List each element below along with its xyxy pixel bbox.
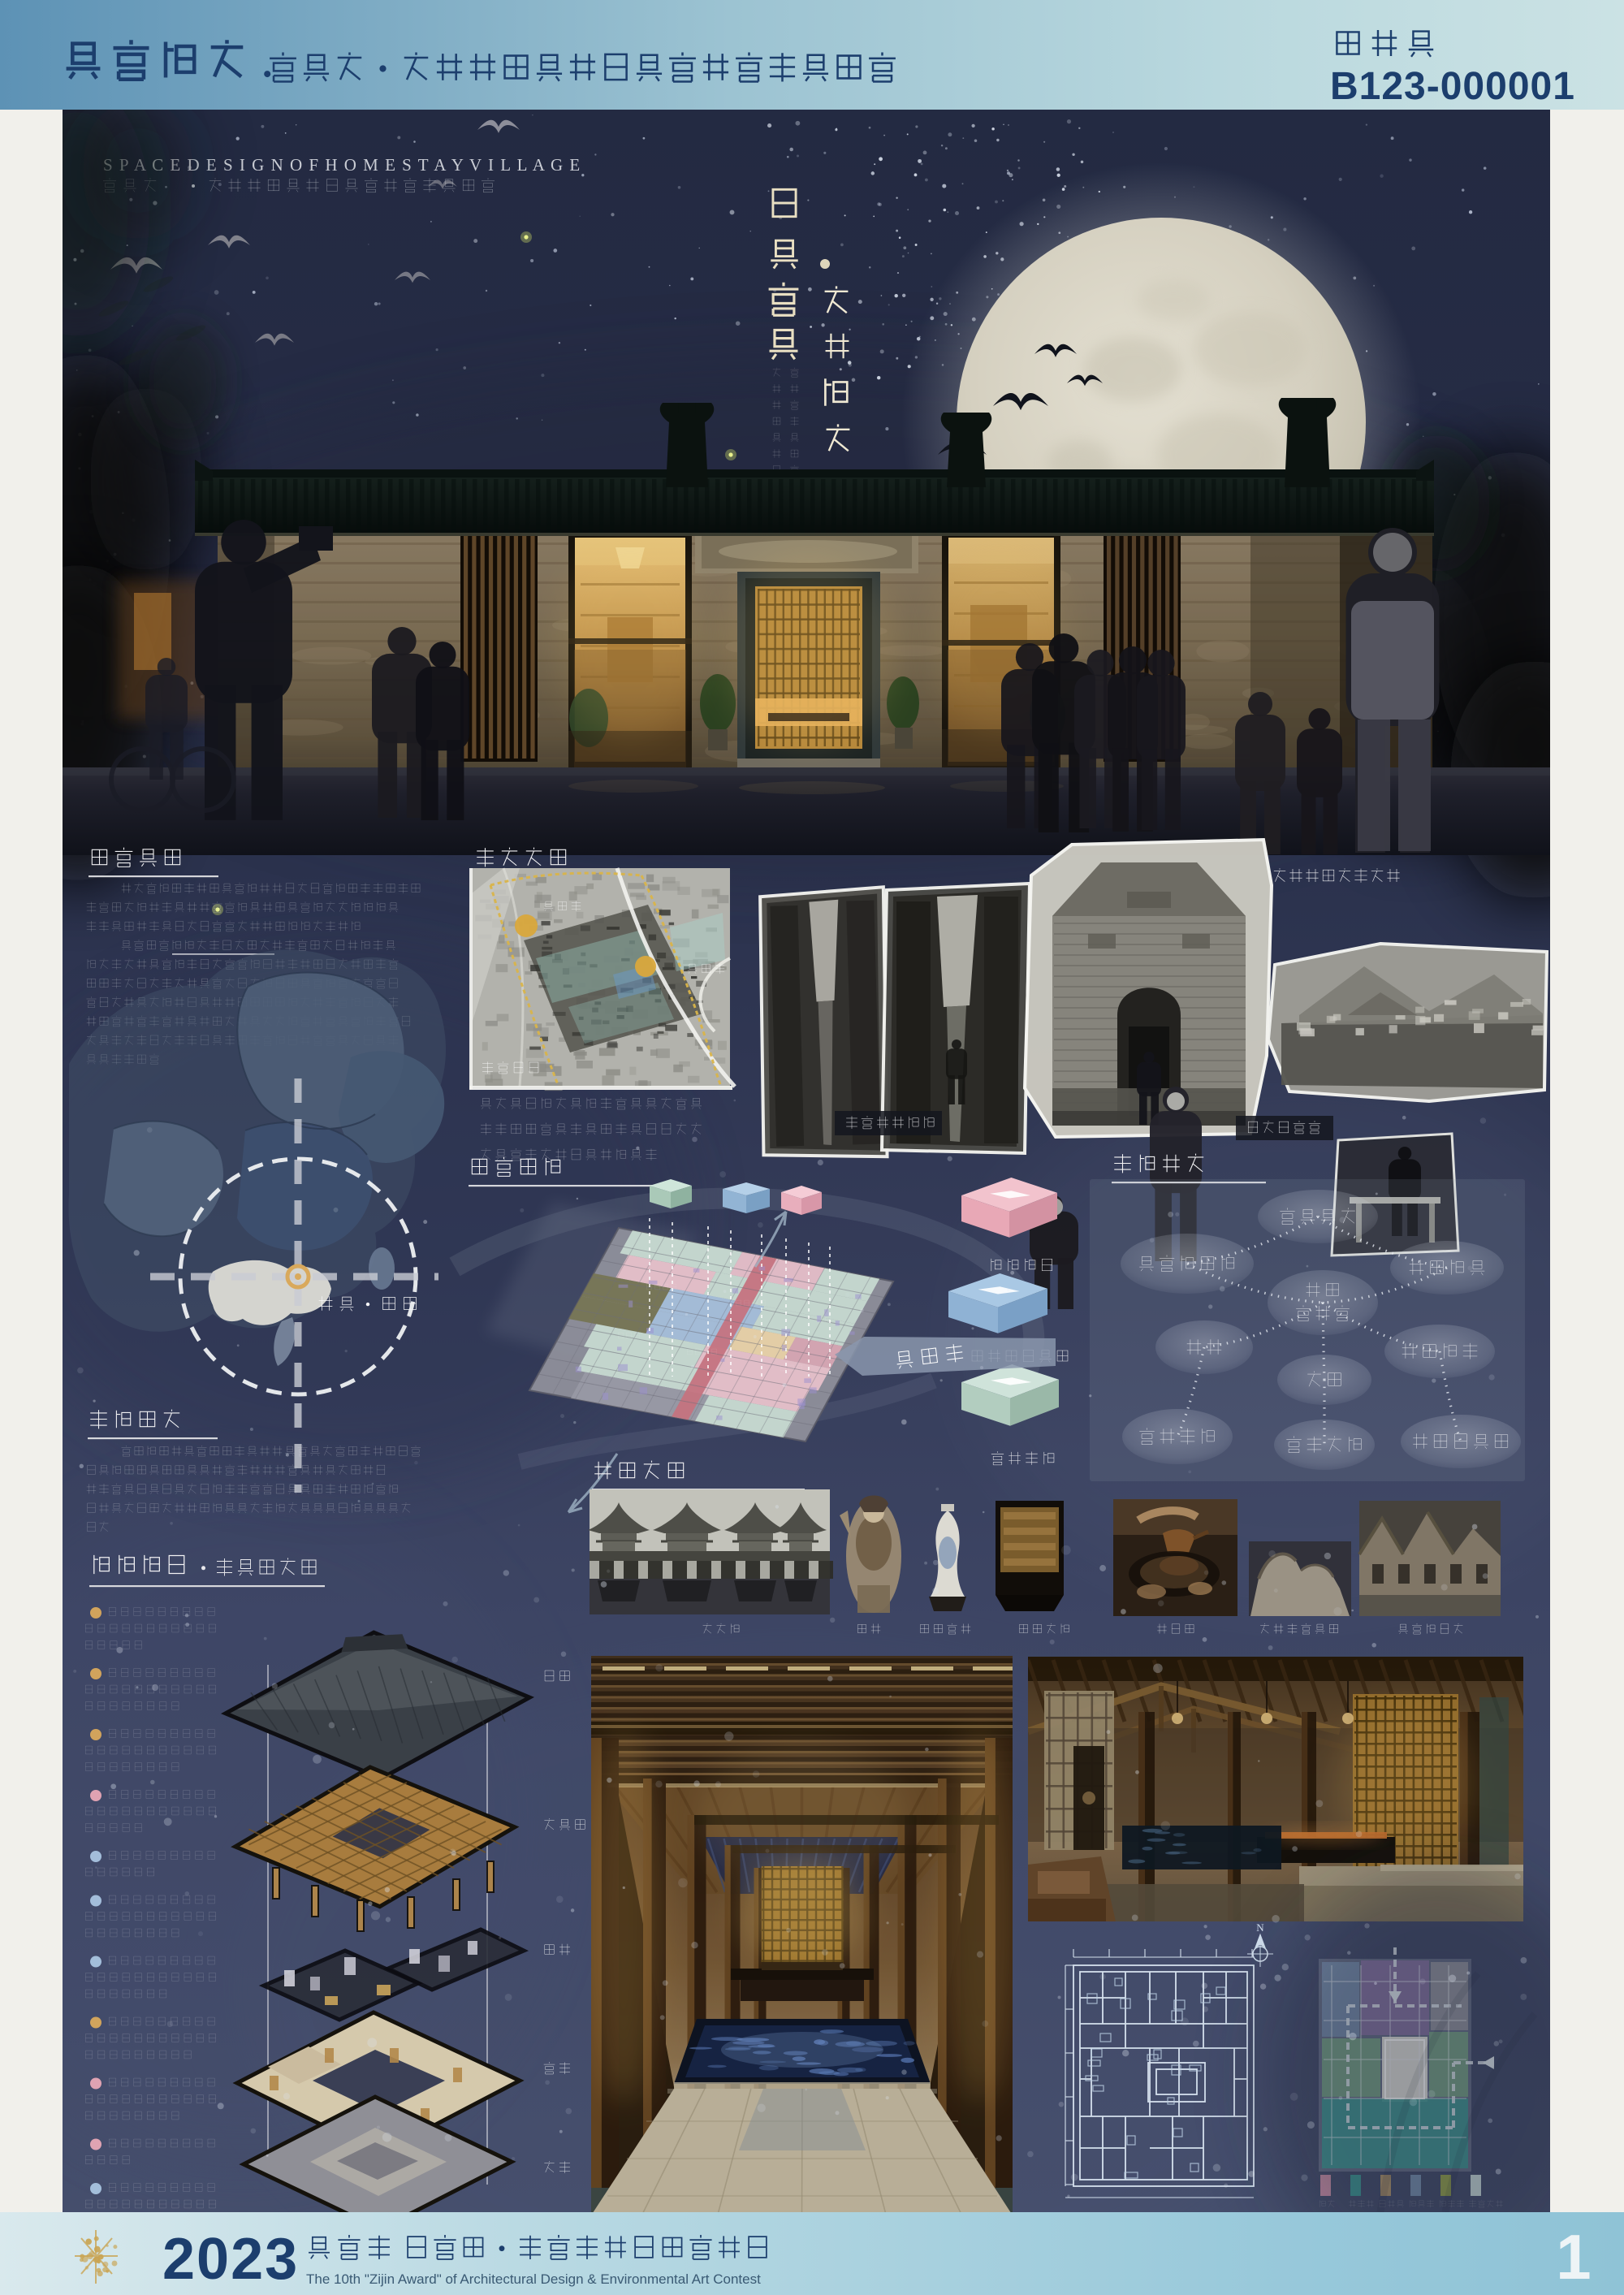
svg-text:The 10th "Zijin Award" of Arch: The 10th "Zijin Award" of Architectural … <box>306 2271 761 2287</box>
svg-text:N: N <box>1256 1921 1264 1934</box>
svg-text:2023: 2023 <box>162 2227 299 2292</box>
svg-text:B123-000001: B123-000001 <box>1330 65 1575 108</box>
svg-text:1: 1 <box>1556 2221 1591 2293</box>
